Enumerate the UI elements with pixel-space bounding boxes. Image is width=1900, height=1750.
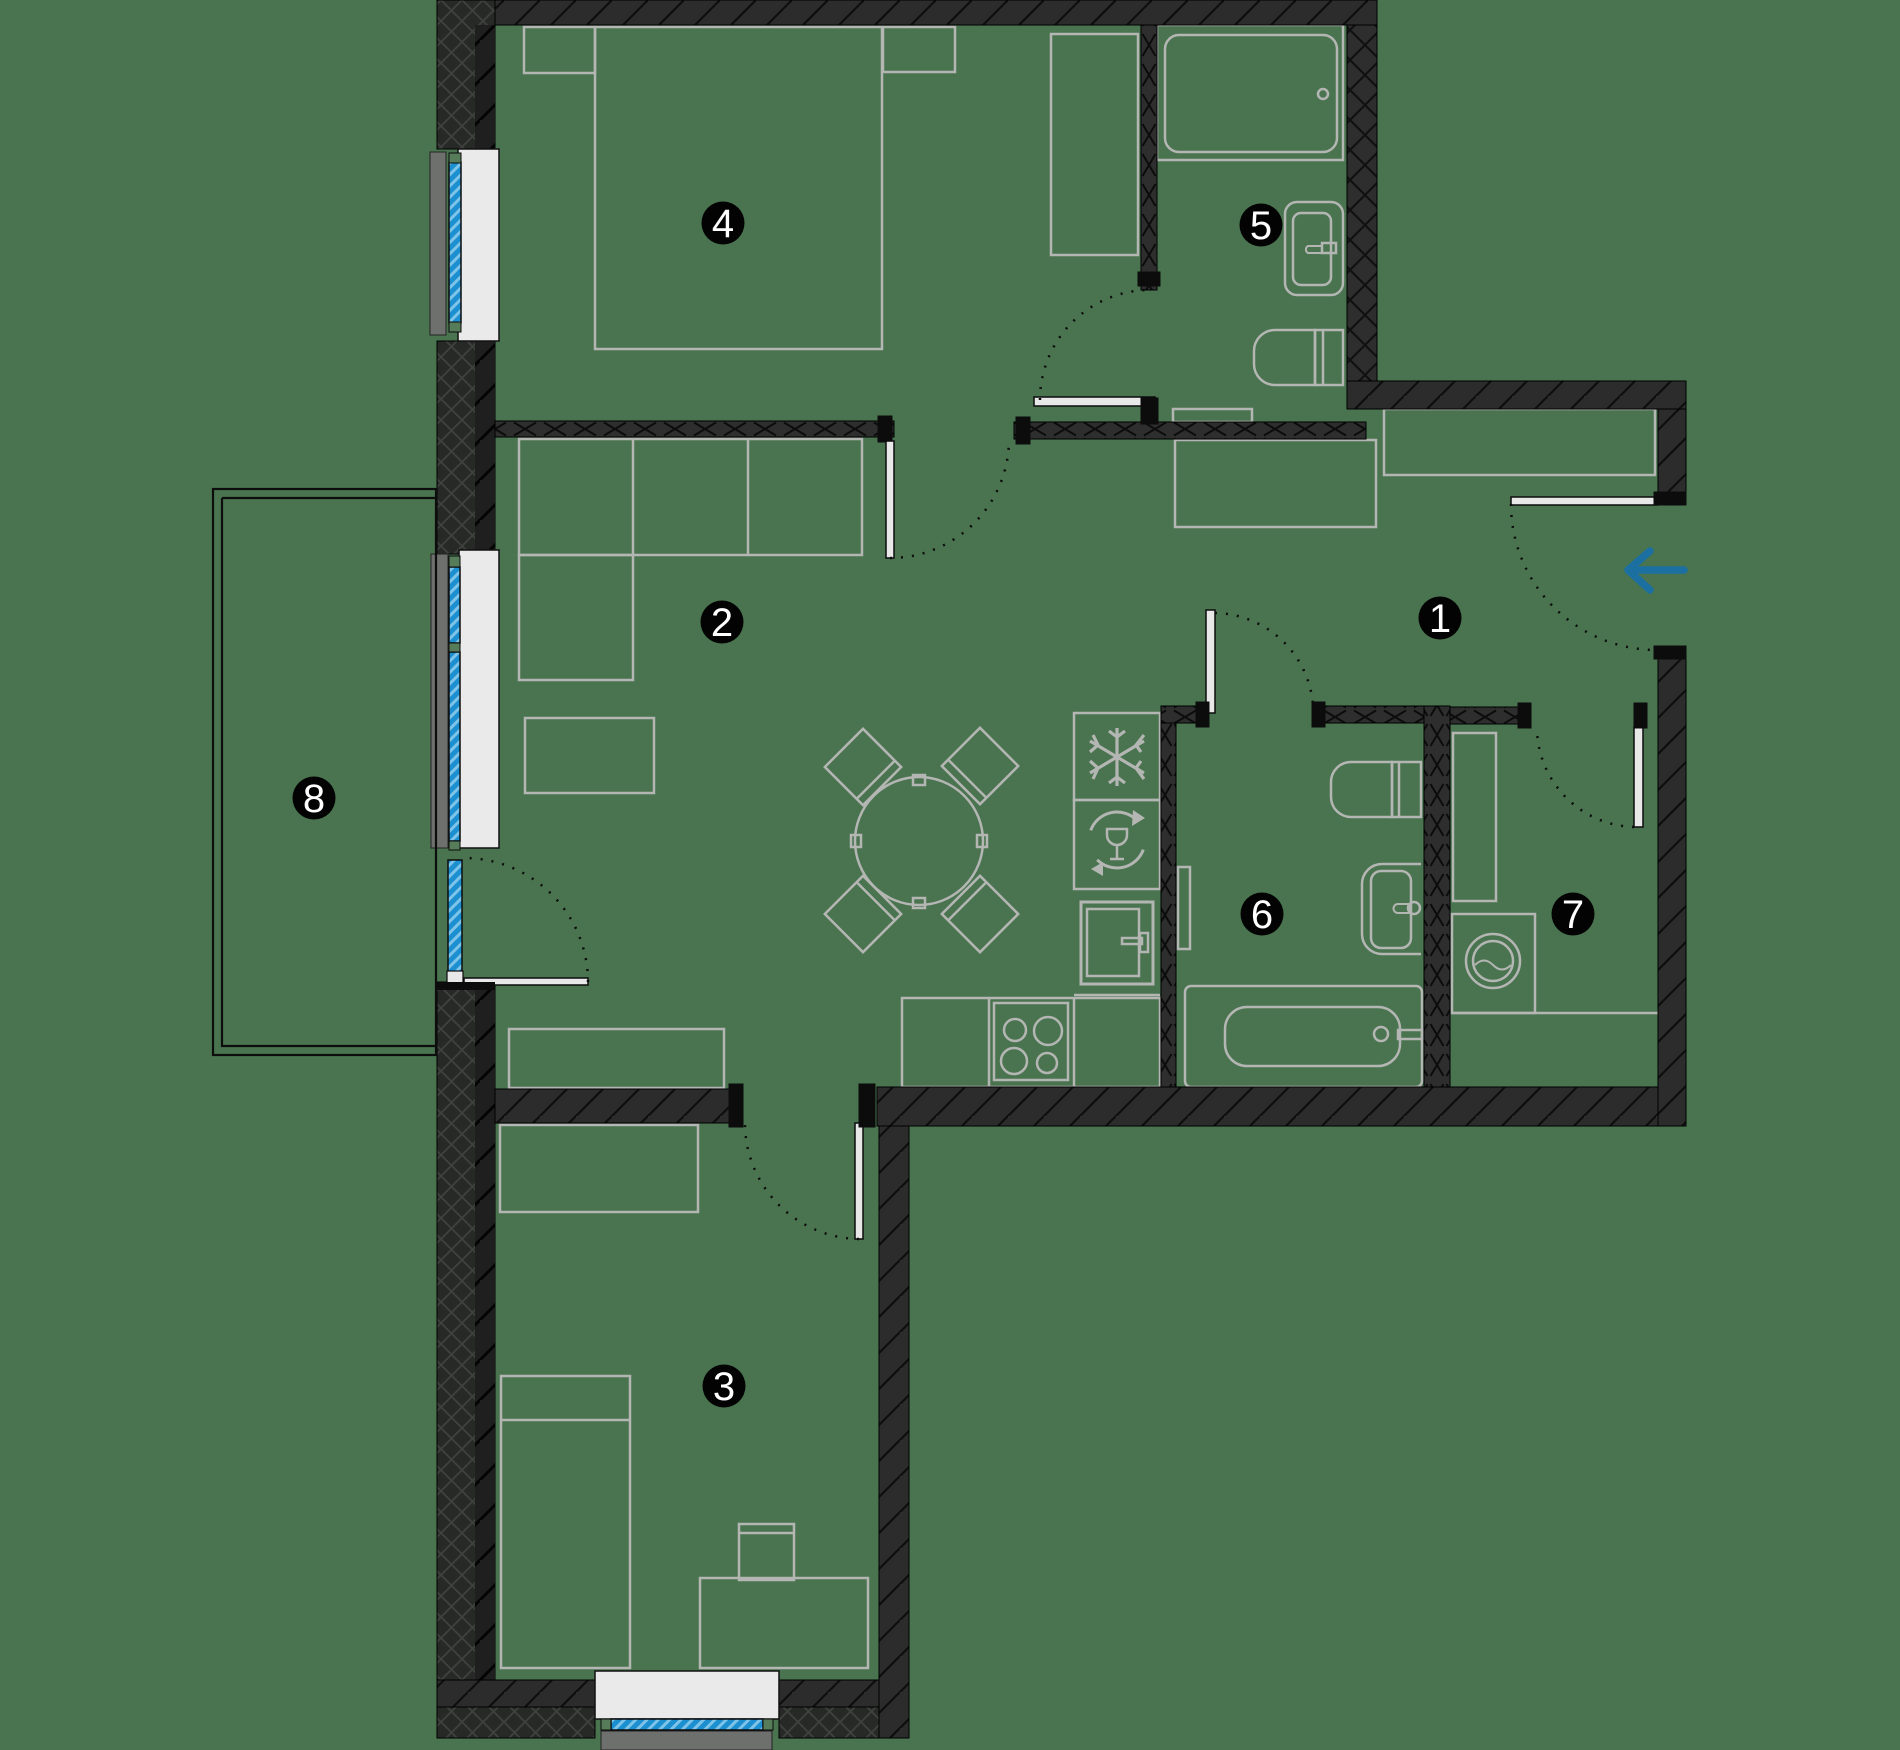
svg-text:5: 5 <box>1250 204 1272 248</box>
svg-text:1: 1 <box>1429 597 1451 641</box>
svg-text:3: 3 <box>713 1365 735 1409</box>
svg-text:8: 8 <box>303 777 325 821</box>
svg-text:7: 7 <box>1562 893 1584 937</box>
svg-text:4: 4 <box>712 202 734 246</box>
svg-text:6: 6 <box>1251 893 1273 937</box>
svg-text:2: 2 <box>711 601 733 645</box>
